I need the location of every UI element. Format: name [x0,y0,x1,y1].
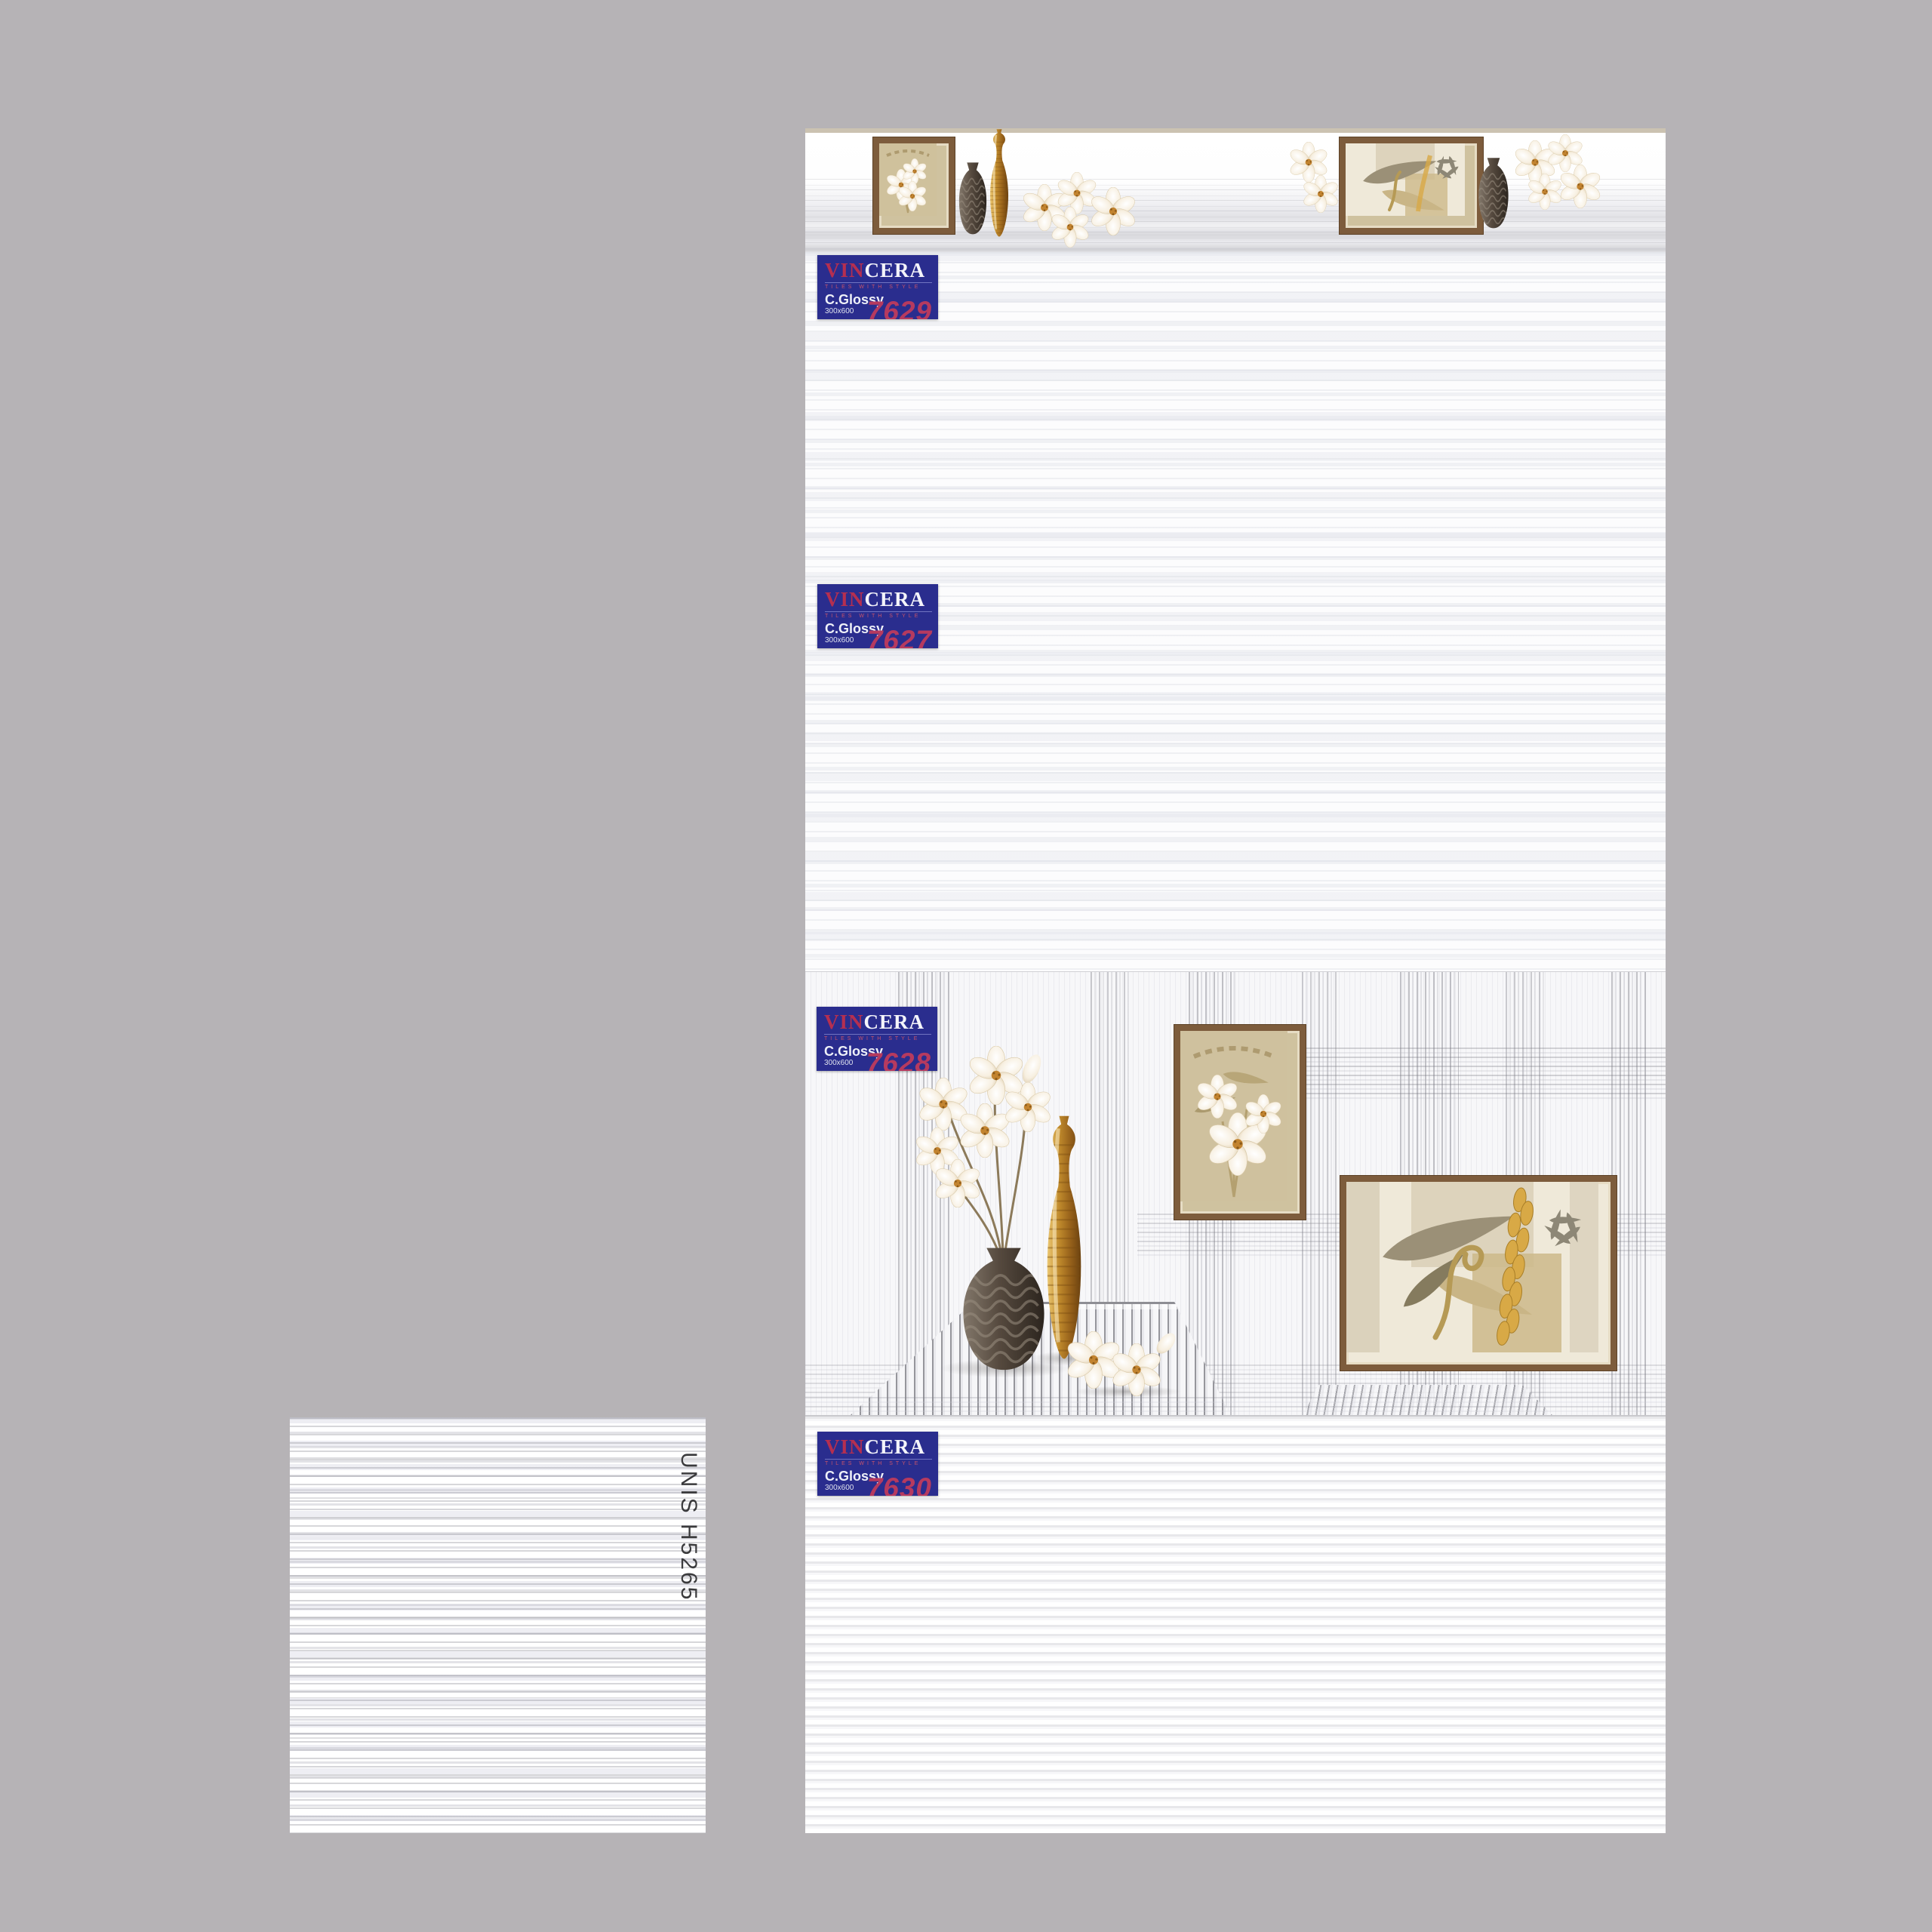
brand-tagline: TILES WITH STYLE [825,285,932,290]
leaf-collage-art [1346,1182,1598,1352]
strip-framed-art-right [1340,137,1483,234]
vincera-logo-7628: VINCERA TILES WITH STYLE C.Glossy 300x60… [817,1007,937,1071]
tile-7630-face: VINCERA TILES WITH STYLE C.Glossy 300x60… [805,1415,1666,1833]
strip-gold-vase [983,128,1015,238]
brand-tagline: TILES WITH STYLE [825,1461,932,1466]
strip-flowers-left [1020,171,1146,251]
tile-code: 7627 [867,626,932,648]
catalog-panel: VINCERA TILES WITH STYLE C.Glossy 300x60… [805,128,1666,1833]
dark-wave-vase [950,1244,1057,1372]
vincera-logo-7627: VINCERA TILES WITH STYLE C.Glossy 300x60… [817,584,938,648]
brand-cera: CERA [864,1011,925,1033]
strip-flowers-mid [1285,137,1346,219]
lotus-art [1180,1031,1287,1201]
brand-cera: CERA [865,588,926,611]
brand-wordmark: VINCERA [825,260,932,283]
flower-art [879,143,937,216]
strip-dark-vase-right [1474,155,1513,229]
tile-code: 7630 [867,1474,932,1496]
brand-cera: CERA [865,259,926,281]
strip-flowers-right [1512,134,1604,216]
brand-wordmark: VINCERA [825,589,932,612]
floor-edge-stripes [805,1397,1666,1415]
brand-vin: VIN [824,1011,864,1033]
strip-framed-art-left [873,137,955,234]
tile-code: 7629 [867,297,932,319]
brand-vin: VIN [825,588,865,611]
brand-wordmark: VINCERA [825,1437,932,1460]
stripe-band [1302,972,1337,1415]
swatch-label: UNIS H5265 [675,1452,701,1601]
catalog-sheet: UNIS H5265 [0,0,1932,1932]
tile-7628-scene: VINCERA TILES WITH STYLE C.Glossy 300x60… [805,971,1666,1415]
brand-vin: VIN [825,1435,865,1458]
swatch-tile: UNIS H5265 [290,1417,706,1833]
leaf-art [1346,143,1465,216]
vincera-logo-7629: VINCERA TILES WITH STYLE C.Glossy 300x60… [817,255,938,319]
magnolia-at-base [1060,1321,1181,1399]
brand-cera: CERA [865,1435,926,1458]
tile-7629-7627-face: VINCERA TILES WITH STYLE C.Glossy 300x60… [805,251,1666,971]
brand-wordmark: VINCERA [824,1012,931,1035]
framed-art-landscape [1340,1176,1617,1371]
brand-tagline: TILES WITH STYLE [825,614,932,619]
brand-vin: VIN [825,259,865,281]
brand-tagline: TILES WITH STYLE [824,1036,931,1041]
tile-code: 7628 [866,1049,931,1071]
framed-art-portrait [1174,1025,1306,1220]
decor-strip [805,133,1666,251]
vincera-logo-7630: VINCERA TILES WITH STYLE C.Glossy 300x60… [817,1432,938,1496]
